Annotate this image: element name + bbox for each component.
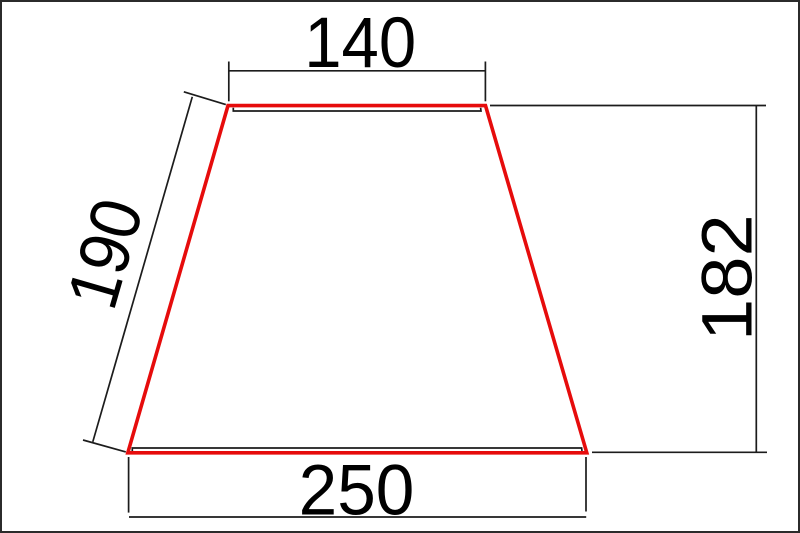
svg-text:250: 250 bbox=[299, 450, 415, 530]
svg-text:140: 140 bbox=[304, 2, 416, 82]
svg-text:182: 182 bbox=[687, 214, 767, 341]
